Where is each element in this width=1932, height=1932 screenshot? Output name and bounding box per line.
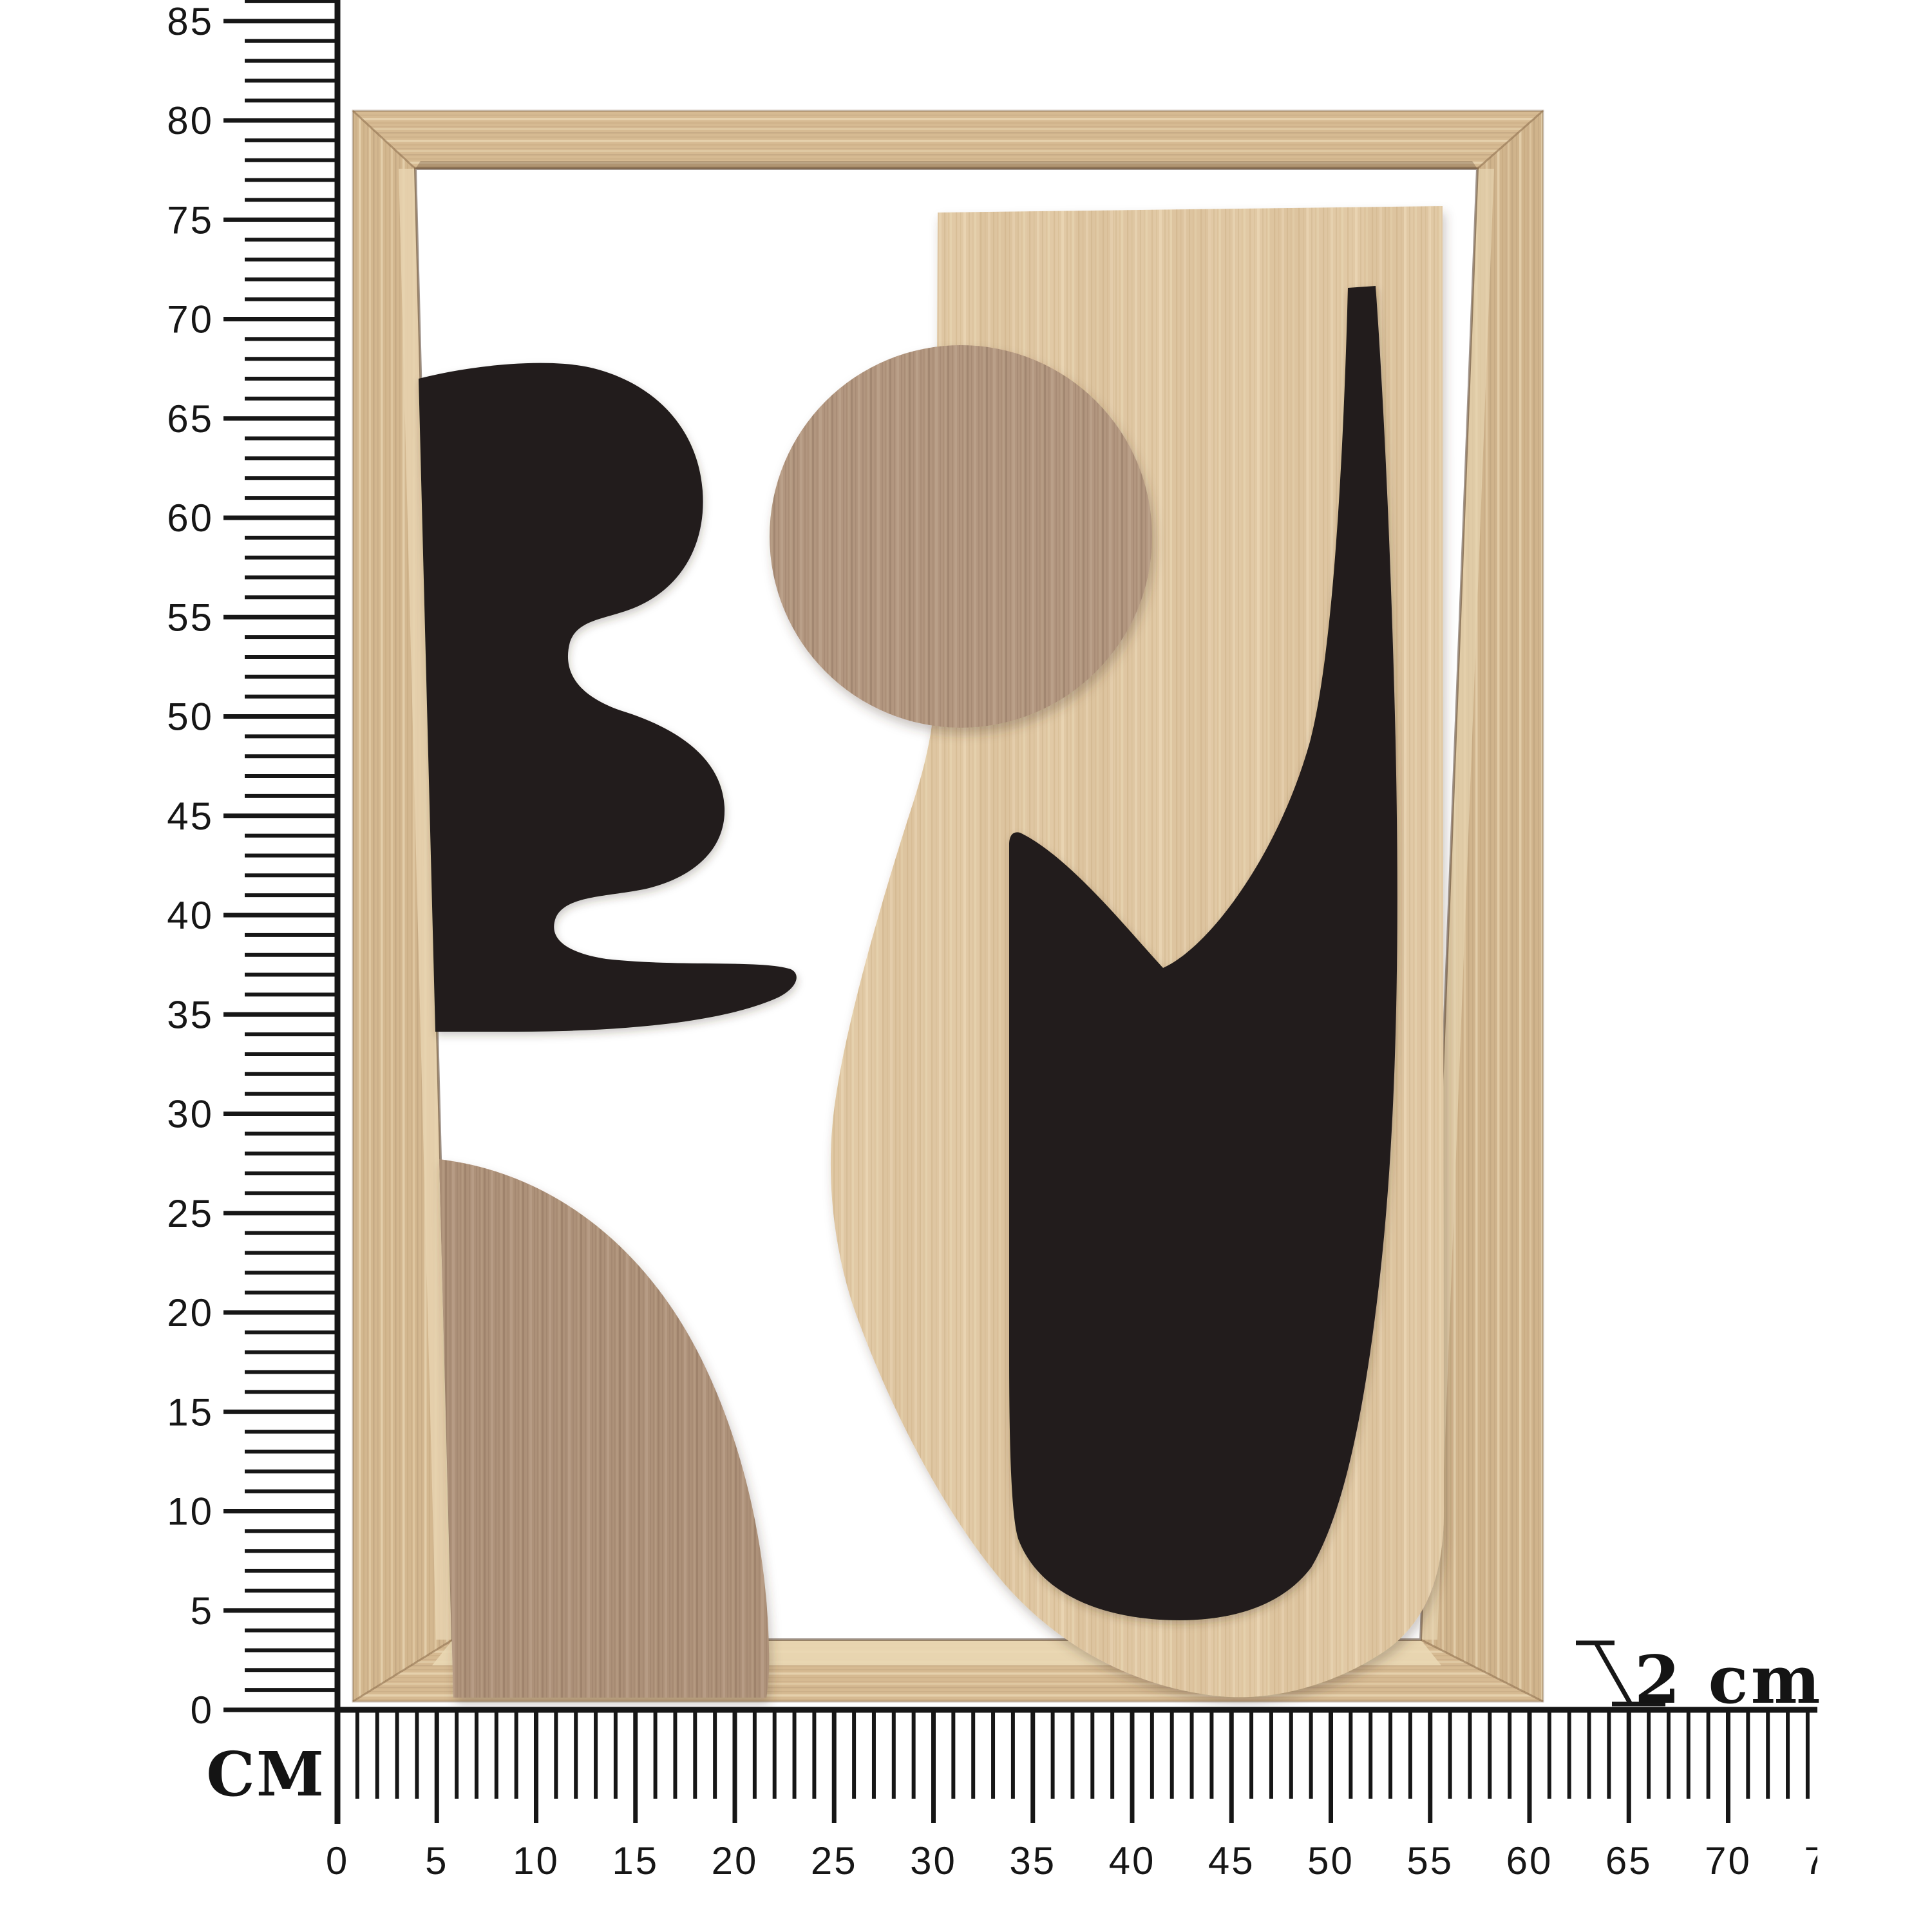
vertical-ruler-number: 30	[167, 1093, 214, 1136]
vertical-ruler: 0510152025303540455055606570758085	[167, 0, 337, 1824]
horizontal-ruler-number: 10	[513, 1839, 560, 1882]
horizontal-ruler: 051015202530354045505560657075	[326, 1710, 1851, 1882]
walnut-dome	[439, 1159, 769, 1698]
vertical-ruler-number: 0	[191, 1689, 214, 1732]
depth-label: 2 cm	[1634, 1642, 1823, 1719]
vertical-ruler-number: 40	[167, 894, 214, 937]
artwork-shapes	[419, 206, 1444, 1698]
horizontal-ruler-number: 25	[811, 1839, 858, 1882]
vertical-ruler-number: 20	[167, 1291, 214, 1334]
frame-top-bar	[353, 111, 1543, 169]
horizontal-ruler-number: 15	[612, 1839, 659, 1882]
horizontal-ruler-number: 45	[1208, 1839, 1255, 1882]
vertical-ruler-number: 85	[167, 0, 214, 43]
depth-diagonal	[1596, 1643, 1631, 1704]
vertical-ruler-number: 60	[167, 497, 214, 540]
horizontal-ruler-number: 40	[1109, 1839, 1156, 1882]
horizontal-ruler-number: 20	[712, 1839, 759, 1882]
walnut-circle	[770, 345, 1152, 728]
horizontal-ruler-number: 65	[1605, 1839, 1653, 1882]
vertical-ruler-number: 55	[167, 596, 214, 639]
vertical-ruler-number: 10	[167, 1490, 214, 1533]
horizontal-ruler-number: 50	[1307, 1839, 1354, 1882]
vertical-ruler-number: 15	[167, 1390, 214, 1434]
black-wavy-blob	[419, 363, 797, 1032]
vertical-ruler-number: 35	[167, 993, 214, 1036]
cm-unit-label: CM	[206, 1739, 325, 1810]
horizontal-ruler-number: 35	[1009, 1839, 1056, 1882]
horizontal-ruler-number: 0	[326, 1839, 349, 1882]
vertical-ruler-number: 5	[191, 1589, 214, 1633]
horizontal-ruler-number: 60	[1506, 1839, 1553, 1882]
vertical-ruler-number: 45	[167, 795, 214, 838]
vertical-ruler-number: 25	[167, 1192, 214, 1235]
vertical-ruler-number: 70	[167, 298, 214, 341]
vertical-ruler-number: 65	[167, 397, 214, 440]
vertical-ruler-number: 50	[167, 696, 214, 739]
horizontal-ruler-number: 70	[1705, 1839, 1752, 1882]
vertical-ruler-number: 75	[167, 198, 214, 241]
horizontal-ruler-number: 5	[425, 1839, 448, 1882]
horizontal-ruler-number: 30	[910, 1839, 957, 1882]
product-dimension-image: 0510152025303540455055606570758085 05101…	[0, 0, 1932, 1932]
scene: 0510152025303540455055606570758085 05101…	[0, 0, 1932, 1932]
horizontal-ruler-number: 55	[1406, 1839, 1454, 1882]
vertical-ruler-number: 80	[167, 99, 214, 142]
horizontal-ruler-number-partial: 75	[1804, 1839, 1851, 1882]
